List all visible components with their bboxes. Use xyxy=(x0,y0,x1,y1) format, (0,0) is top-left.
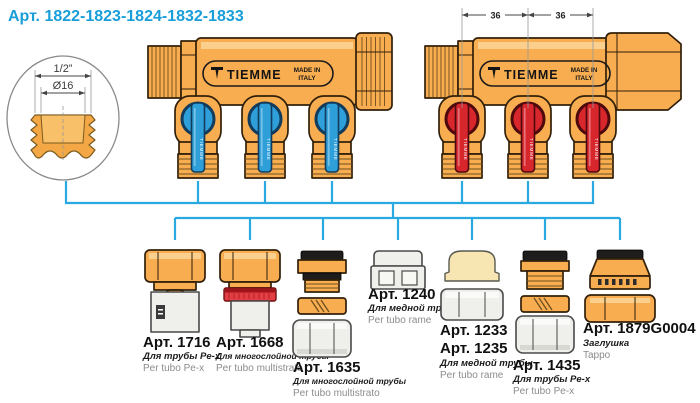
manifold-left: TIEMME MADE IN ITALY TIEMME TIEMME TIEMM… xyxy=(148,33,392,178)
detail-circle: 1/2” Ø16 xyxy=(7,56,119,180)
dimension-36-left: 36 xyxy=(490,11,500,21)
desc-ru: Для многослойной трубы xyxy=(292,376,407,386)
valve-handle-label: TIEMME xyxy=(463,138,468,161)
desc-it: Per tubo Pe-x xyxy=(513,386,574,397)
fitting-1435: Арт. 1435 Для трубы Pe-x Per tubo Pe-x xyxy=(512,251,591,397)
art-number: Арт. 1879G0004 xyxy=(583,320,696,337)
compression-olive xyxy=(445,251,499,281)
desc-it: Per tubo multistrato xyxy=(216,363,303,374)
female-end xyxy=(356,33,392,110)
fitting-1716: Арт. 1716 Для трубы Pe-x Per tubo Pe-x xyxy=(142,250,221,374)
brand-name: TIEMME xyxy=(504,68,559,82)
connection-lines xyxy=(66,181,620,240)
desc-ru: Заглушка xyxy=(583,338,629,349)
valve-blue-3 xyxy=(309,96,355,178)
plug-cap xyxy=(597,250,643,259)
art-number: Арт. 1233 xyxy=(440,322,508,339)
valve-red-3 xyxy=(570,96,616,178)
made-in-line1: MADE IN xyxy=(294,67,321,74)
brand-name: TIEMME xyxy=(227,68,282,82)
valve-handle-label: TIEMME xyxy=(333,138,338,161)
made-in-line2: ITALY xyxy=(575,75,593,82)
desc-it: Per tubo rame xyxy=(440,370,504,381)
o-ring xyxy=(301,251,343,260)
desc-it: Per tubo rame xyxy=(368,315,432,326)
valve-handle-label: TIEMME xyxy=(199,138,204,161)
manifold-right: TIEMME MADE IN ITALY TIEMME TIEMME TIEMM… xyxy=(425,33,681,178)
fitting-1879G0004: Арт. 1879G0004 Заглушка Tappo xyxy=(583,250,696,361)
fitting-top xyxy=(374,251,422,266)
dimension-36-right: 36 xyxy=(555,11,565,21)
art-number: Арт. 1435 xyxy=(513,357,581,374)
art-number: Арт. 1716 xyxy=(143,334,211,351)
dim-bore-label: Ø16 xyxy=(53,80,74,92)
desc-it: Per tubo multistrato xyxy=(293,388,380,399)
desc-ru: Для трубы Pe-x xyxy=(512,374,591,385)
valve-red-2 xyxy=(505,96,551,178)
valve-blue-2 xyxy=(242,96,288,178)
desc-it: Per tubo Pe-x xyxy=(143,363,204,374)
valve-handle-label: TIEMME xyxy=(266,138,271,161)
desc-ru: Для трубы Pe-x xyxy=(142,351,221,362)
art-number-2: Арт. 1235 xyxy=(440,340,508,357)
valve-red-1 xyxy=(439,96,485,178)
page-title: Арт. 1822-1823-1824-1832-1833 xyxy=(8,8,244,25)
dim-half-inch-label: 1/2” xyxy=(54,63,73,75)
made-in-line1: MADE IN xyxy=(571,67,598,74)
art-number: Арт. 1240 xyxy=(368,286,436,303)
fitting-body xyxy=(231,301,269,330)
catalog-diagram: Арт. 1822-1823-1824-1832-1833 1/2” Ø16 T… xyxy=(0,0,700,403)
valve-handle-label: TIEMME xyxy=(529,138,534,161)
made-in-line2: ITALY xyxy=(298,75,316,82)
valve-handle-label: TIEMME xyxy=(594,138,599,161)
art-number: Арт. 1635 xyxy=(293,359,361,376)
art-number: Арт. 1668 xyxy=(216,334,284,351)
valve-blue-1 xyxy=(175,96,221,178)
desc-it: Tappo xyxy=(583,350,611,361)
o-ring xyxy=(303,273,341,280)
o-ring xyxy=(523,251,567,261)
